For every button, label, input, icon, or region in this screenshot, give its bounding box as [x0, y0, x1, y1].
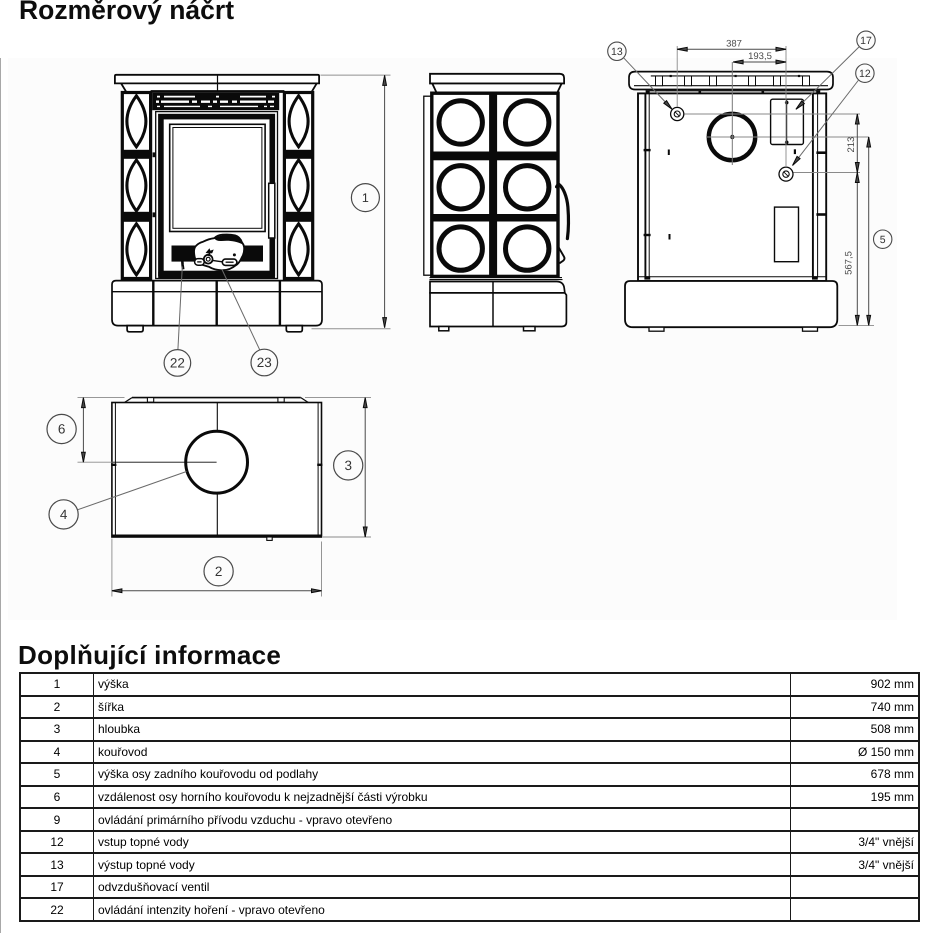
svg-text:13: 13: [611, 46, 623, 58]
svg-text:193,5: 193,5: [748, 51, 772, 62]
svg-text:387: 387: [726, 38, 742, 49]
svg-text:4: 4: [60, 507, 68, 522]
svg-text:1: 1: [362, 191, 369, 205]
svg-text:6: 6: [58, 422, 66, 437]
svg-text:22: 22: [170, 356, 185, 371]
svg-text:213: 213: [846, 137, 857, 153]
svg-text:3: 3: [344, 458, 352, 473]
svg-text:12: 12: [859, 68, 871, 80]
svg-text:5: 5: [880, 234, 886, 246]
svg-text:23: 23: [257, 355, 272, 370]
svg-text:17: 17: [860, 35, 872, 47]
svg-text:2: 2: [215, 564, 223, 579]
svg-text:567,5: 567,5: [844, 251, 855, 275]
